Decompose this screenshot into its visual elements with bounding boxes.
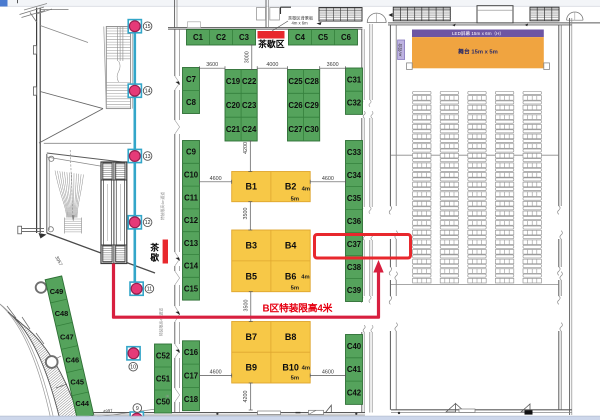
svg-text:C8: C8 — [186, 98, 197, 107]
svg-text:C18: C18 — [184, 395, 199, 404]
svg-text:C51: C51 — [156, 374, 171, 383]
svg-text:4m: 4m — [301, 275, 309, 281]
svg-text:C30: C30 — [305, 125, 320, 134]
svg-text:C41: C41 — [347, 365, 362, 374]
svg-text:C11: C11 — [184, 193, 199, 202]
svg-text:B9: B9 — [246, 363, 258, 373]
svg-text:B6: B6 — [285, 271, 297, 281]
svg-text:C37: C37 — [347, 240, 361, 249]
svg-text:3000: 3000 — [244, 51, 250, 63]
svg-text:C3: C3 — [239, 33, 250, 42]
svg-text:3600: 3600 — [206, 62, 218, 68]
svg-text:茶歇区: 茶歇区 — [257, 38, 285, 49]
svg-text:3500: 3500 — [243, 300, 249, 312]
svg-text:C29: C29 — [305, 101, 320, 110]
svg-text:C45: C45 — [70, 377, 84, 386]
svg-text:B7: B7 — [246, 332, 258, 342]
svg-text:C24: C24 — [242, 125, 257, 134]
svg-text:B10: B10 — [282, 363, 299, 373]
svg-text:C32: C32 — [347, 99, 362, 108]
svg-text:茶: 茶 — [149, 242, 159, 253]
svg-text:5m: 5m — [291, 196, 299, 202]
svg-text:C46: C46 — [66, 356, 80, 365]
svg-text:C13: C13 — [184, 239, 199, 248]
svg-text:C34: C34 — [347, 171, 362, 180]
svg-text:C40: C40 — [347, 342, 362, 351]
svg-text:4600: 4600 — [210, 370, 222, 376]
svg-text:B区特装限高4米: B区特装限高4米 — [263, 301, 333, 314]
svg-text:C42: C42 — [347, 389, 362, 398]
svg-text:C16: C16 — [184, 348, 199, 357]
svg-text:C25: C25 — [288, 77, 303, 86]
svg-text:C48: C48 — [55, 309, 69, 318]
svg-text:C5: C5 — [318, 33, 329, 42]
svg-text:特装限高4m通道: 特装限高4m通道 — [159, 308, 164, 336]
svg-text:舞台 15m x 5m: 舞台 15m x 5m — [458, 48, 498, 56]
svg-text:14: 14 — [145, 89, 151, 95]
svg-text:C21: C21 — [226, 125, 241, 134]
svg-text:C39: C39 — [347, 286, 362, 295]
svg-text:4600: 4600 — [322, 370, 334, 376]
svg-text:C19: C19 — [226, 77, 241, 86]
svg-text:4m x 6m: 4m x 6m — [292, 21, 309, 26]
svg-text:C52: C52 — [156, 351, 171, 360]
svg-text:C2: C2 — [216, 33, 227, 42]
svg-text:13: 13 — [145, 154, 151, 160]
svg-text:C28: C28 — [305, 77, 320, 86]
svg-text:C20: C20 — [226, 101, 241, 110]
svg-text:4m: 4m — [302, 187, 310, 193]
svg-text:3600: 3600 — [327, 62, 339, 68]
svg-text:11: 11 — [147, 287, 152, 293]
svg-text:B2: B2 — [285, 182, 297, 192]
svg-text:C22: C22 — [242, 77, 257, 86]
svg-text:C44: C44 — [75, 399, 89, 408]
svg-text:C35: C35 — [347, 194, 362, 203]
svg-text:9: 9 — [136, 406, 139, 412]
svg-text:C6: C6 — [341, 33, 352, 42]
svg-text:4200: 4200 — [243, 142, 249, 154]
svg-text:C31: C31 — [347, 75, 362, 84]
svg-text:AV控台: AV控台 — [397, 43, 403, 56]
svg-text:C47: C47 — [60, 332, 74, 341]
svg-text:C36: C36 — [347, 217, 362, 226]
svg-text:特装限高4m通道: 特装限高4m通道 — [160, 192, 165, 220]
svg-text:C49: C49 — [50, 287, 64, 296]
svg-text:B1: B1 — [246, 182, 258, 192]
svg-text:C4: C4 — [295, 33, 306, 42]
svg-text:歇: 歇 — [149, 252, 159, 263]
svg-text:B8: B8 — [285, 332, 297, 342]
svg-text:5m: 5m — [291, 286, 299, 292]
svg-text:10: 10 — [130, 365, 136, 371]
svg-text:C15: C15 — [184, 285, 199, 294]
svg-text:B4: B4 — [285, 240, 297, 250]
svg-text:C26: C26 — [288, 101, 303, 110]
svg-text:4m: 4m — [302, 366, 310, 372]
svg-text:C10: C10 — [184, 171, 199, 180]
svg-text:C12: C12 — [184, 216, 199, 225]
svg-text:5m: 5m — [291, 376, 299, 382]
svg-text:C38: C38 — [347, 263, 362, 272]
svg-text:4200: 4200 — [243, 391, 249, 403]
svg-text:LED屏幕 15m x 6m（H）: LED屏幕 15m x 6m（H） — [452, 30, 504, 37]
svg-text:B3: B3 — [246, 240, 258, 250]
svg-text:4600: 4600 — [322, 176, 334, 182]
svg-text:C9: C9 — [186, 148, 197, 157]
svg-text:C14: C14 — [184, 262, 199, 271]
svg-text:C17: C17 — [184, 372, 198, 381]
svg-text:B5: B5 — [246, 271, 258, 281]
svg-text:12: 12 — [145, 220, 151, 226]
svg-text:3500: 3500 — [243, 208, 249, 220]
svg-text:C1: C1 — [193, 33, 204, 42]
svg-text:C23: C23 — [242, 101, 257, 110]
svg-text:C33: C33 — [347, 148, 362, 157]
svg-text:4600: 4600 — [210, 176, 222, 182]
svg-text:4000: 4000 — [266, 62, 278, 68]
svg-text:C7: C7 — [186, 75, 196, 84]
svg-text:15: 15 — [145, 24, 151, 30]
svg-text:C27: C27 — [288, 125, 302, 134]
